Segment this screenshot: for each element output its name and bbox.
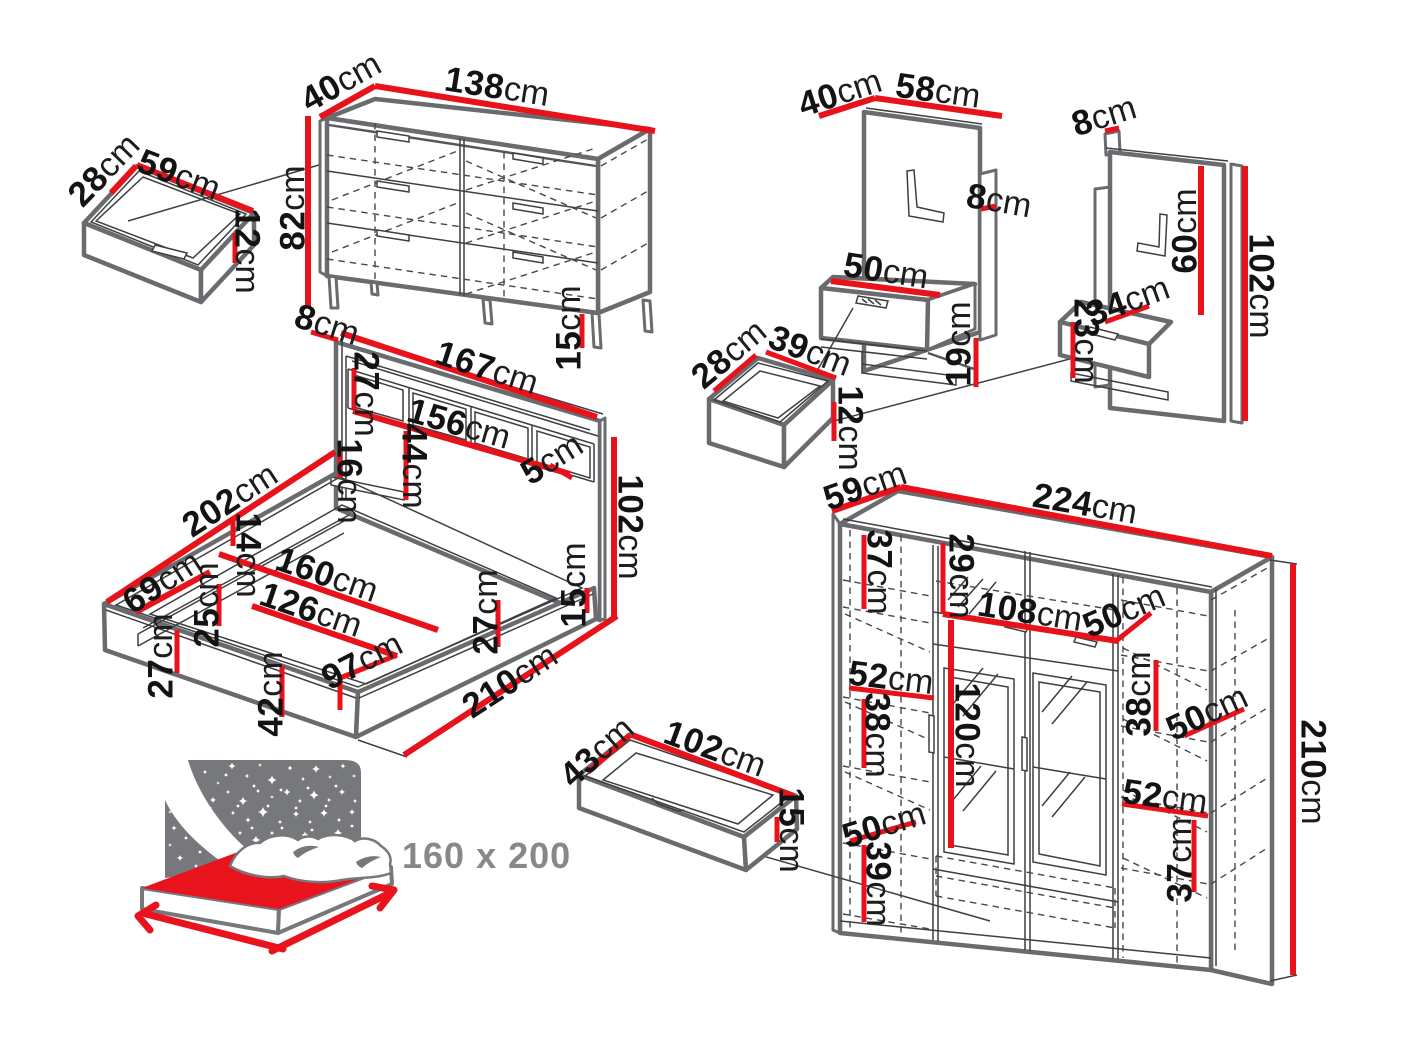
svg-text:16cm: 16cm bbox=[330, 438, 369, 523]
svg-text:25cm: 25cm bbox=[188, 562, 227, 647]
svg-text:102cm: 102cm bbox=[611, 474, 650, 579]
svg-text:12cm: 12cm bbox=[831, 385, 870, 470]
svg-text:15cm: 15cm bbox=[555, 542, 594, 627]
svg-text:23cm: 23cm bbox=[1067, 298, 1106, 383]
svg-text:27cm: 27cm bbox=[467, 569, 506, 654]
svg-text:27cm: 27cm bbox=[142, 613, 181, 698]
svg-text:14cm: 14cm bbox=[229, 512, 268, 597]
svg-text:37cm: 37cm bbox=[1161, 817, 1200, 902]
svg-text:160 x 200: 160 x 200 bbox=[402, 835, 571, 876]
svg-text:44cm: 44cm bbox=[395, 423, 434, 508]
svg-text:37cm: 37cm bbox=[860, 529, 899, 614]
svg-text:38cm: 38cm bbox=[1120, 651, 1159, 736]
svg-text:19cm: 19cm bbox=[940, 301, 979, 386]
svg-text:27cm: 27cm bbox=[347, 351, 386, 436]
svg-text:38cm: 38cm bbox=[858, 692, 897, 777]
svg-text:15cm: 15cm bbox=[772, 787, 811, 872]
svg-text:29cm: 29cm bbox=[942, 533, 981, 618]
svg-text:210cm: 210cm bbox=[1294, 719, 1333, 824]
svg-text:12cm: 12cm bbox=[228, 208, 267, 293]
svg-text:15cm: 15cm bbox=[550, 285, 589, 370]
svg-text:102cm: 102cm bbox=[1242, 233, 1281, 338]
svg-text:39cm: 39cm bbox=[859, 841, 898, 926]
svg-text:42cm: 42cm bbox=[252, 651, 291, 736]
svg-text:60cm: 60cm bbox=[1166, 188, 1205, 273]
svg-text:82cm: 82cm bbox=[274, 165, 313, 250]
svg-text:120cm: 120cm bbox=[948, 682, 987, 787]
